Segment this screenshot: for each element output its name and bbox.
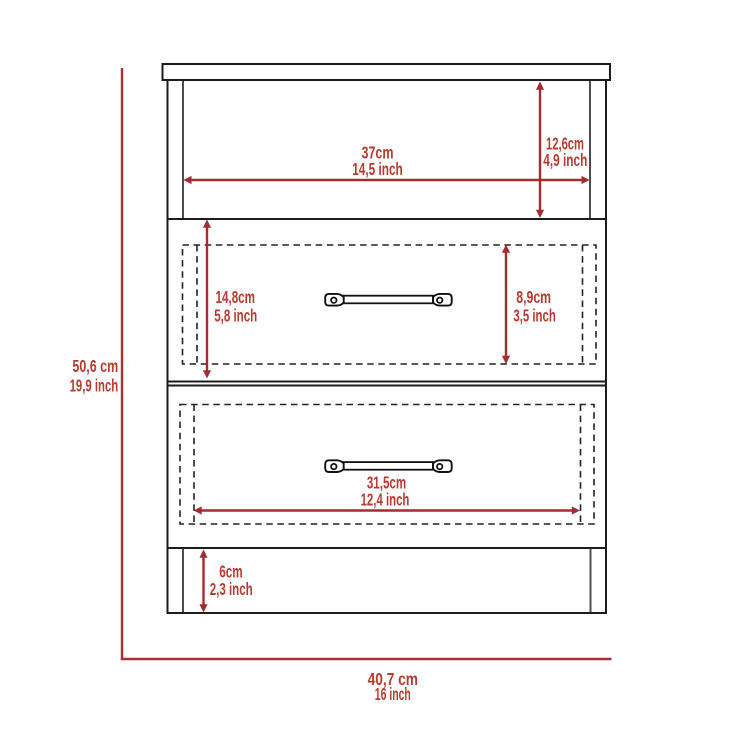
svg-text:50,6 cm: 50,6 cm [72, 356, 118, 376]
svg-text:8,9cm: 8,9cm [516, 287, 551, 307]
svg-text:5,8 inch: 5,8 inch [214, 305, 257, 325]
svg-text:14,8cm: 14,8cm [216, 287, 256, 307]
svg-text:3,5 inch: 3,5 inch [513, 305, 555, 325]
svg-text:16 inch: 16 inch [375, 684, 411, 704]
svg-text:19,9 inch: 19,9 inch [70, 375, 119, 395]
svg-text:12,4 inch: 12,4 inch [361, 489, 410, 509]
svg-text:14,5 inch: 14,5 inch [352, 159, 403, 179]
svg-text:2,3 inch: 2,3 inch [210, 579, 253, 599]
svg-text:4,9 inch: 4,9 inch [543, 150, 587, 170]
